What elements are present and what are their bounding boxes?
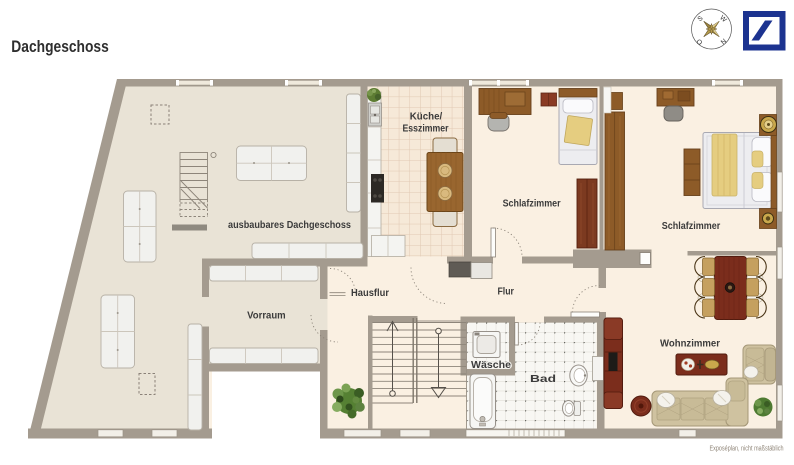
svg-text:ausbaubares Dachgeschoss: ausbaubares Dachgeschoss [228, 220, 351, 231]
svg-text:Schlafzimmer: Schlafzimmer [662, 221, 721, 232]
svg-text:Wohnzimmer: Wohnzimmer [660, 338, 720, 350]
svg-text:Bad: Bad [530, 374, 556, 385]
svg-text:Schlafzimmer: Schlafzimmer [503, 199, 561, 210]
svg-text:Küche/: Küche/ [410, 112, 443, 123]
svg-text:Esszimmer: Esszimmer [403, 124, 449, 135]
svg-text:Exposéplan, nicht maßstäblich: Exposéplan, nicht maßstäblich [710, 446, 784, 453]
svg-text:Wäsche: Wäsche [471, 360, 512, 371]
svg-text:Vorraum: Vorraum [247, 310, 286, 322]
svg-text:Dachgeschoss: Dachgeschoss [11, 37, 109, 56]
svg-text:Hausflur: Hausflur [351, 287, 389, 299]
svg-text:Flur: Flur [497, 286, 514, 298]
